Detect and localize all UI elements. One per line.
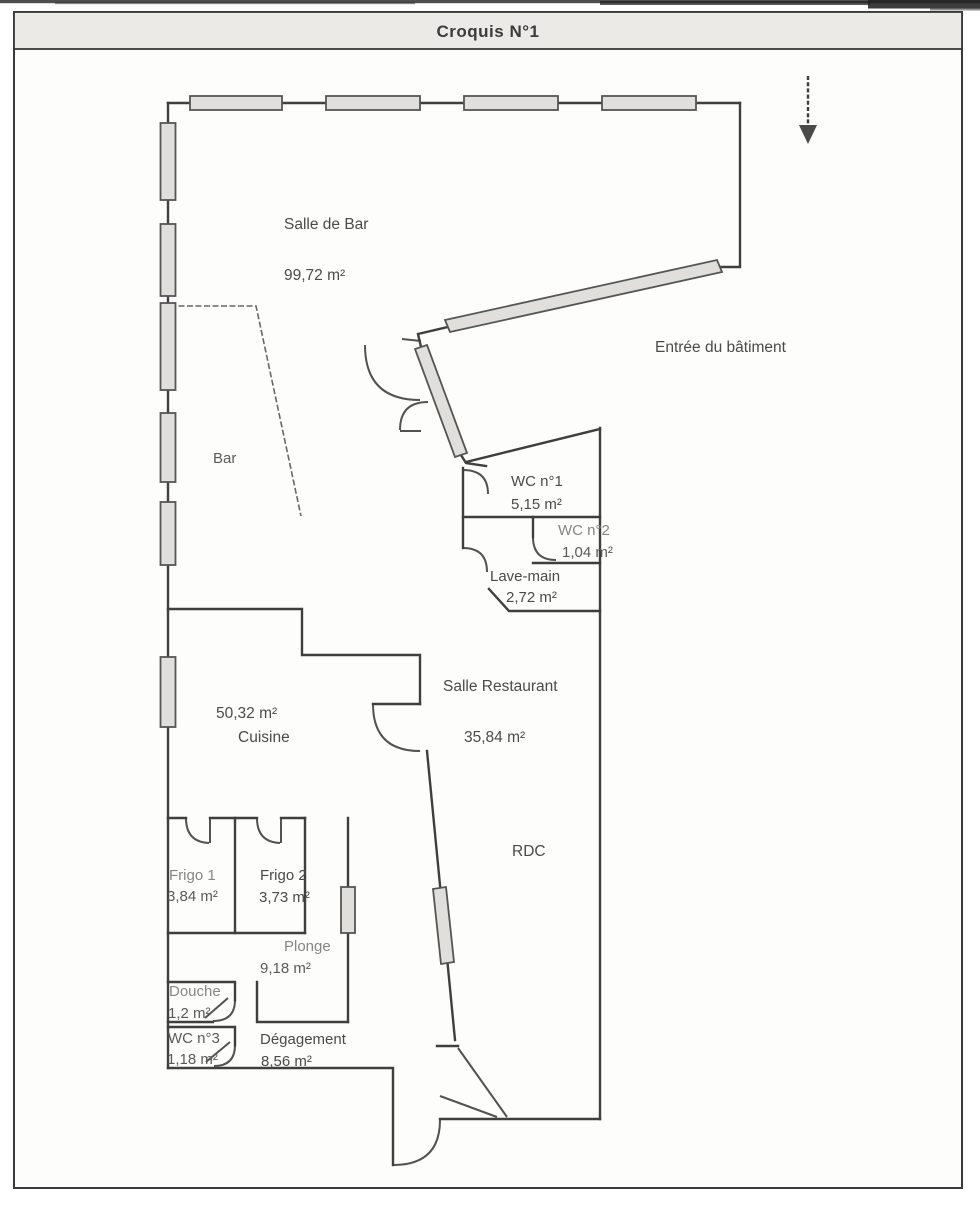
label-plonge: Plonge (284, 938, 331, 955)
window (464, 96, 558, 110)
label-wc3: WC n°3 (168, 1030, 220, 1047)
label-degagement: Dégagement (260, 1031, 347, 1048)
label-bar: Bar (213, 450, 236, 467)
page-border (14, 12, 962, 1188)
window (161, 502, 176, 565)
label-cuisine: Cuisine (238, 729, 290, 746)
label-salle-de-bar: Salle de Bar (284, 216, 368, 233)
label-wc2: WC n°2 (558, 522, 610, 539)
label-degagement-area: 8,56 m² (261, 1053, 312, 1070)
window (341, 887, 355, 933)
label-frigo2: Frigo 2 (260, 867, 307, 884)
label-frigo1: Frigo 1 (169, 867, 216, 884)
label-frigo1-area: 3,84 m² (167, 888, 218, 905)
window (326, 96, 420, 110)
label-frigo2-area: 3,73 m² (259, 889, 310, 906)
window (161, 123, 176, 200)
scan-edge-strip (600, 1, 870, 5)
label-salle-de-bar-area: 99,72 m² (284, 267, 345, 284)
label-wc1-area: 5,15 m² (511, 496, 562, 513)
window (602, 96, 696, 110)
floor-plan-svg: Croquis N°1 (0, 0, 980, 1226)
label-wc1: WC n°1 (511, 473, 563, 490)
label-salle-restaurant: Salle Restaurant (443, 678, 558, 695)
label-wc2-area: 1,04 m² (562, 544, 613, 561)
scan-corner-blob (868, 0, 980, 9)
label-lave-main: Lave-main (490, 568, 560, 585)
label-entree: Entrée du bâtiment (655, 339, 787, 356)
scan-artifacts (0, 0, 980, 11)
label-lave-main-area: 2,72 m² (506, 589, 557, 606)
label-douche-area: 1,2 m² (168, 1005, 211, 1022)
scan-edge-strip (55, 2, 415, 4)
label-wc3-area: 1,18 m² (167, 1051, 218, 1068)
label-douche: Douche (169, 983, 221, 1000)
label-cuisine-area: 50,32 m² (216, 705, 277, 722)
window (161, 657, 176, 727)
scan-edge-strip (930, 8, 980, 11)
scanned-floor-plan-page: Croquis N°1 (0, 0, 980, 1226)
window (161, 303, 176, 390)
label-plonge-area: 9,18 m² (260, 960, 311, 977)
window (161, 413, 176, 482)
window (161, 224, 176, 296)
page-title: Croquis N°1 (437, 22, 540, 41)
label-rdc: RDC (512, 843, 546, 860)
label-salle-restaurant-area: 35,84 m² (464, 729, 525, 746)
window (190, 96, 282, 110)
